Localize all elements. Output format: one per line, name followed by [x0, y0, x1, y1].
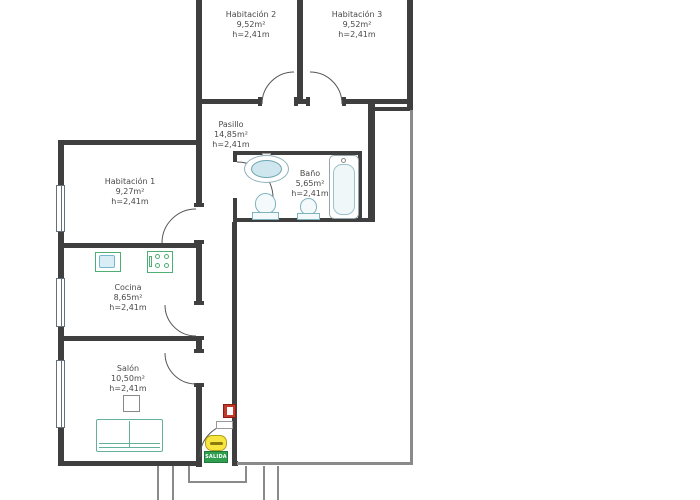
coffee-table — [123, 395, 140, 412]
doormat — [205, 435, 227, 451]
wall — [233, 151, 237, 162]
kitchen-sink-basin — [99, 255, 115, 268]
bidet-base — [297, 213, 320, 220]
stove-burner — [155, 263, 160, 268]
window-line — [61, 186, 62, 231]
stove-burner — [164, 263, 169, 268]
wall — [58, 327, 64, 360]
fire-extinguisher-glyph — [227, 407, 233, 415]
door-arc — [162, 209, 196, 243]
wall — [58, 336, 202, 341]
room-name: Cocina — [83, 283, 173, 293]
window — [56, 185, 65, 232]
room-area: 5,65m² — [265, 179, 355, 189]
stair-line — [263, 466, 265, 500]
wall — [196, 240, 202, 305]
window-line — [61, 279, 62, 326]
room-height: h=2,41m — [85, 197, 175, 207]
stove-burner — [155, 254, 160, 259]
wall — [58, 243, 202, 248]
door-arc — [262, 72, 294, 104]
room-height: h=2,41m — [265, 189, 355, 199]
wall-thin — [237, 462, 413, 465]
room-area: 9,52m² — [312, 20, 402, 30]
floor-plan: SALIDA Habitación 2 9,52m² h=2,41m Habit… — [0, 0, 700, 500]
door-arc — [310, 72, 342, 104]
room-label-salon: Salón 10,50m² h=2,41m — [83, 364, 173, 394]
room-name: Habitación 2 — [206, 10, 296, 20]
door-jamb — [194, 301, 204, 305]
wall — [58, 232, 64, 278]
doormat-line — [210, 442, 223, 445]
door-jamb — [306, 97, 310, 106]
room-area: 8,65m² — [83, 293, 173, 303]
wall — [368, 104, 375, 222]
room-height: h=2,41m — [206, 30, 296, 40]
door-jamb — [294, 97, 298, 106]
room-name: Habitación 3 — [312, 10, 402, 20]
window — [56, 360, 65, 428]
wall — [196, 383, 202, 467]
door-jamb — [342, 97, 346, 106]
room-area: 9,52m² — [206, 20, 296, 30]
sofa-seat-line — [99, 443, 160, 444]
wall — [342, 99, 413, 104]
sofa-seat-line — [99, 447, 160, 448]
window — [56, 278, 65, 327]
door-jamb — [194, 240, 204, 244]
stair-line — [277, 466, 279, 500]
wall — [58, 461, 202, 466]
stair-line — [188, 481, 247, 483]
exit-sign: SALIDA — [204, 451, 228, 463]
room-label-habitacion-3: Habitación 3 9,52m² h=2,41m — [312, 10, 402, 40]
exit-door-leaf — [216, 421, 233, 429]
wall — [368, 107, 413, 111]
room-label-bano: Baño 5,65m² h=2,41m — [265, 169, 355, 199]
wall-thin — [410, 110, 413, 465]
stair-line — [245, 466, 247, 483]
wall — [196, 99, 262, 104]
room-name: Pasillo — [186, 120, 276, 130]
room-label-cocina: Cocina 8,65m² h=2,41m — [83, 283, 173, 313]
window-line — [61, 361, 62, 427]
door-jamb — [258, 97, 262, 106]
stair-line — [172, 466, 174, 500]
room-label-habitacion-1: Habitación 1 9,27m² h=2,41m — [85, 177, 175, 207]
door-jamb — [194, 349, 204, 353]
wall — [58, 140, 64, 185]
room-area: 10,50m² — [83, 374, 173, 384]
stove-burner — [164, 254, 169, 259]
door-jamb — [194, 203, 204, 207]
room-height: h=2,41m — [312, 30, 402, 40]
wall — [407, 0, 413, 110]
fire-extinguisher-icon — [223, 404, 236, 418]
room-name: Habitación 1 — [85, 177, 175, 187]
wall — [297, 0, 303, 104]
wall — [58, 140, 202, 145]
stove-panel — [149, 256, 152, 267]
door-jamb — [194, 383, 204, 387]
room-height: h=2,41m — [83, 303, 173, 313]
room-name: Salón — [83, 364, 173, 374]
room-height: h=2,41m — [83, 384, 173, 394]
room-area: 9,27m² — [85, 187, 175, 197]
room-height: h=2,41m — [186, 140, 276, 150]
stair-line — [157, 466, 159, 500]
room-area: 14,85m² — [186, 130, 276, 140]
room-name: Baño — [265, 169, 355, 179]
bathtub-drain — [341, 158, 346, 163]
room-label-habitacion-2: Habitación 2 9,52m² h=2,41m — [206, 10, 296, 40]
toilet-base — [252, 212, 279, 220]
room-label-pasillo: Pasillo 14,85m² h=2,41m — [186, 120, 276, 150]
door-jamb — [194, 336, 204, 340]
